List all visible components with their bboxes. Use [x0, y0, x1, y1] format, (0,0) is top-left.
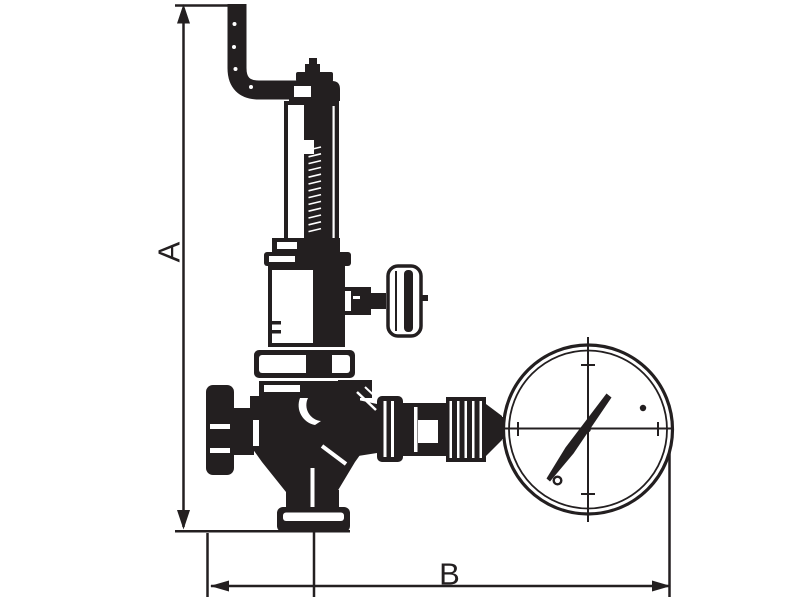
svg-text:A: A [152, 241, 187, 262]
svg-text:B: B [439, 557, 460, 592]
